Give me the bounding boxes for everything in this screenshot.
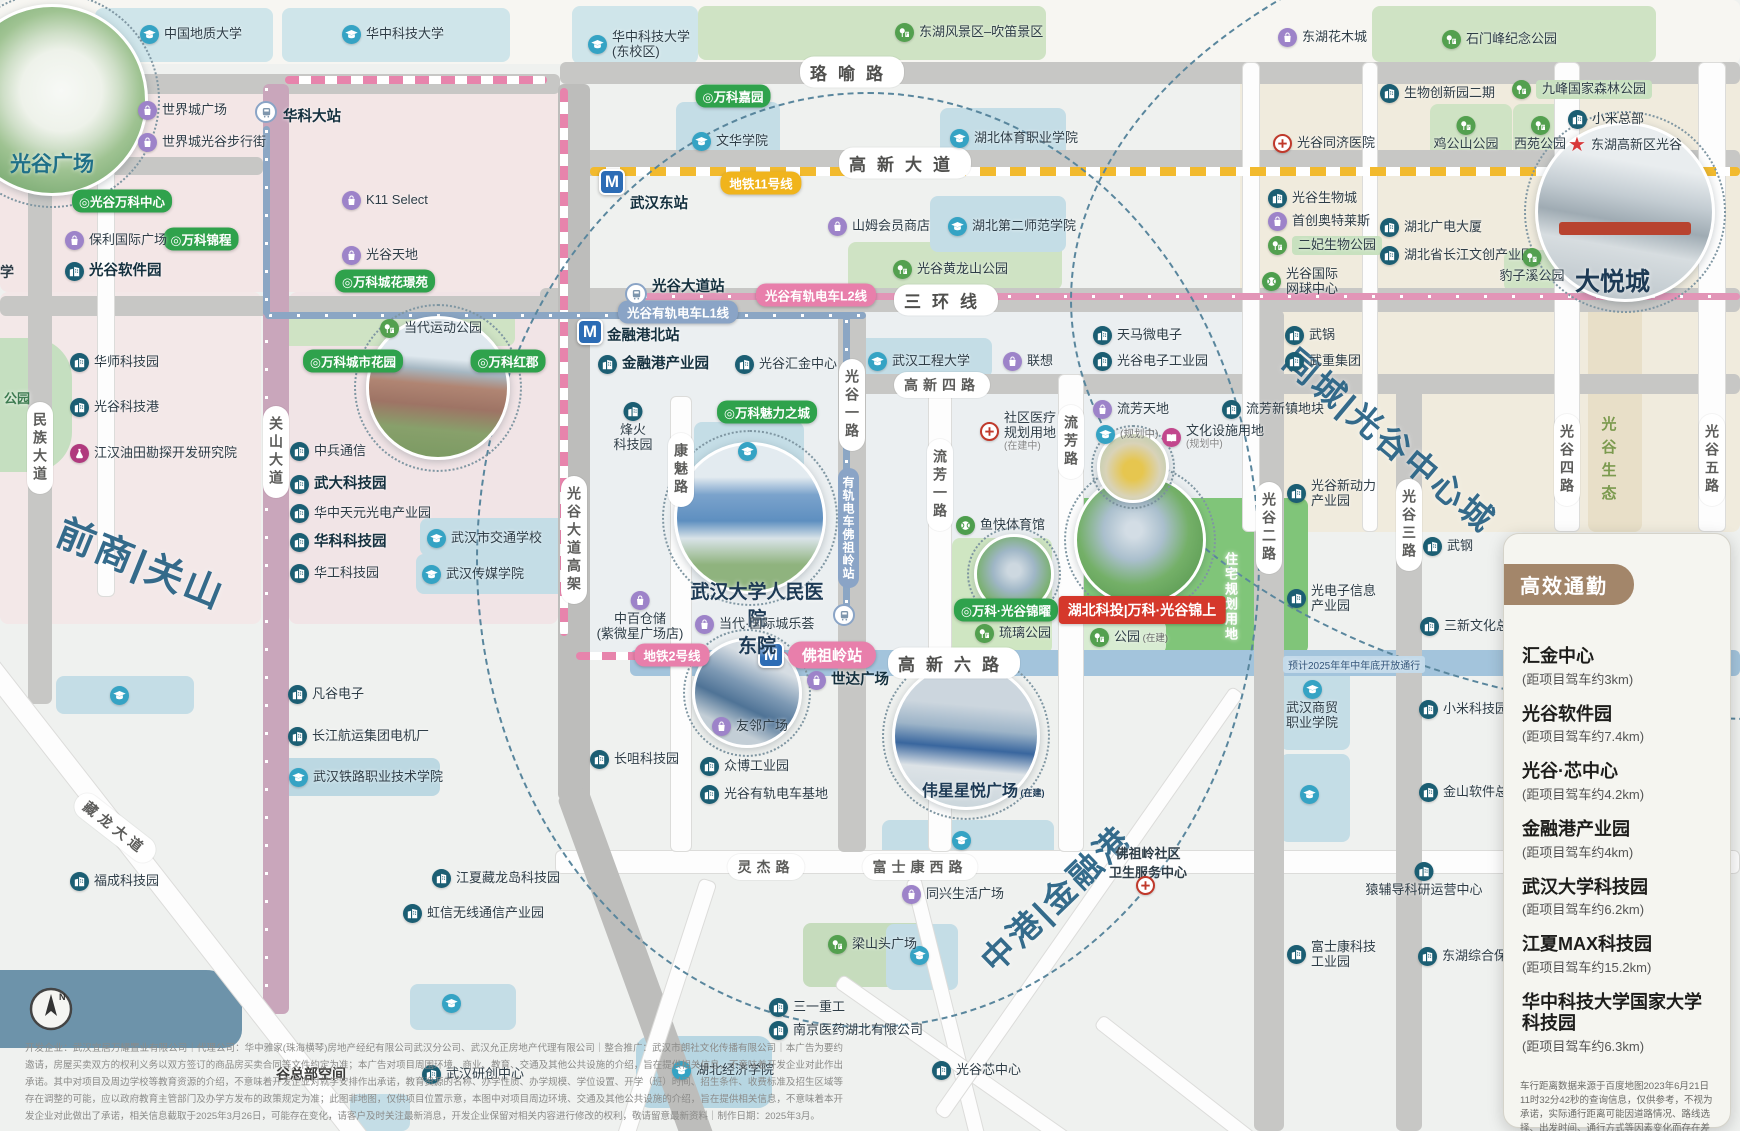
school-icon xyxy=(588,35,607,54)
enterprise-icon xyxy=(1419,783,1438,802)
shopping-icon xyxy=(342,191,361,210)
road-label: 富士康西路 xyxy=(863,854,978,880)
poi-label: 世界城光谷步行街 xyxy=(162,135,266,150)
enterprise-icon xyxy=(1093,352,1112,371)
commute-item: 江夏MAX科技园(距项目驾车约15.2km) xyxy=(1522,934,1718,976)
park-icon xyxy=(1090,628,1109,647)
poi-item: 三一重工 xyxy=(769,998,845,1017)
poi-label: 小米总部 xyxy=(1592,112,1644,127)
commute-item-name: 汇金中心 xyxy=(1522,646,1718,667)
enterprise-icon xyxy=(1287,945,1306,964)
poi-label: 光谷天地 xyxy=(366,248,418,263)
shopping-icon xyxy=(1268,212,1287,231)
commute-item-name: 光谷·芯中心 xyxy=(1522,761,1718,782)
poi-label: 金融港产业园 xyxy=(622,356,709,373)
poi-item: 当代运动公园 xyxy=(380,319,482,338)
poi-item: 光谷黄龙山公园 xyxy=(893,260,1008,279)
commute-item-distance: (距项目驾车约6.3km) xyxy=(1522,1036,1718,1055)
enterprise-icon xyxy=(288,727,307,746)
road-label-eco: 光谷生态 xyxy=(1598,416,1619,508)
poi-label: 武锅 xyxy=(1309,328,1335,343)
project-badge-main: 湖北科投|万科·光谷锦上 xyxy=(1059,596,1226,624)
poi-label: 三一重工 xyxy=(793,1000,845,1015)
poi-item: 长江航运集团电机厂 xyxy=(288,727,429,746)
poi-item: 华中科技大学 xyxy=(342,25,444,44)
tram-station: 光谷大道站 xyxy=(625,283,647,306)
rail-line-badge: 地铁11号线 xyxy=(720,172,801,195)
poi-label: 光谷同济医院 xyxy=(1297,136,1375,151)
hospital-icon xyxy=(980,422,999,441)
park-icon xyxy=(1522,248,1541,267)
school-icon xyxy=(427,529,446,548)
poi-item: 武汉传媒学院 xyxy=(422,565,524,584)
poi-item: 山姆会员商店 xyxy=(828,217,930,236)
poi-label: 中兵通信 xyxy=(314,444,366,459)
tram-station-vertical-label: 有轨电车佛祖岭站 xyxy=(838,468,859,588)
poi-item: 流芳新镇地块 xyxy=(1222,400,1324,419)
road-label: 藏龙大道 xyxy=(69,788,161,868)
poi-item: 武汉商贸 职业学院 xyxy=(1286,680,1338,731)
sports-icon xyxy=(1262,272,1281,291)
poi-label: 天马微电子 xyxy=(1117,328,1182,343)
enterprise-icon xyxy=(70,872,89,891)
road-label: 高新四路 xyxy=(894,372,990,398)
poi-label: 武汉传媒学院 xyxy=(446,567,524,582)
poi-label: 豹子溪公园 xyxy=(1499,269,1564,284)
poi-label: 首创奥特莱斯 xyxy=(1292,214,1370,229)
poi-label: 联想 xyxy=(1027,354,1053,369)
enterprise-icon xyxy=(1419,700,1438,719)
poi-label: 友邻广场 xyxy=(736,719,788,734)
enterprise-icon xyxy=(700,757,719,776)
poi-label: 众博工业园 xyxy=(724,759,789,774)
poi-label: 小米科技园 xyxy=(1443,702,1508,717)
school-icon xyxy=(948,217,967,236)
commute-item: 光谷软件园(距项目驾车约7.4km) xyxy=(1522,704,1718,746)
enterprise-icon xyxy=(1222,400,1241,419)
enterprise-icon xyxy=(623,402,642,421)
tram-station: 华科大站 xyxy=(255,101,277,124)
tram-station xyxy=(833,604,855,627)
road-label: 高新大道 xyxy=(839,148,971,179)
hospital-icon xyxy=(1136,876,1155,895)
commute-item: 汇金中心(距项目驾车约3km) xyxy=(1522,646,1718,688)
legal-disclaimer: 开发企业：武汉宜居万耀置业有限公司｜代理公司：华中雅家(珠海横琴)房地产经纪有限… xyxy=(25,1040,843,1125)
poi-item: 首创奥特莱斯 xyxy=(1268,212,1370,231)
poi-label: 石门峰纪念公园 xyxy=(1466,32,1557,47)
poi-label: 中国地质大学 xyxy=(164,27,242,42)
enterprise-icon xyxy=(70,353,89,372)
metro-station-icon: M xyxy=(599,169,625,195)
commute-item-name: 武汉大学科技园 xyxy=(1522,877,1718,898)
poi-item: 虹信无线通信产业园 xyxy=(403,904,544,923)
poi-item xyxy=(1136,876,1155,895)
poi-label: 鸡公山公园 xyxy=(1433,137,1498,152)
poi-label: 江夏藏龙岛科技园 xyxy=(456,871,560,886)
enterprise-icon xyxy=(700,785,719,804)
poi-item: 二妃生物公园 xyxy=(1268,236,1382,255)
park-icon xyxy=(895,23,914,42)
map-text-label: 学 xyxy=(0,262,14,282)
map-text-label: 大悦城 xyxy=(1575,262,1650,298)
school-icon xyxy=(289,768,308,787)
road-label: 光谷一路 xyxy=(839,359,865,451)
poi-item: 保利国际广场 xyxy=(65,231,167,250)
enterprise-icon xyxy=(1093,326,1112,345)
road-label: 灵杰路 xyxy=(728,854,805,880)
enterprise-icon xyxy=(735,355,754,374)
enterprise-icon xyxy=(1414,862,1433,881)
rail-line xyxy=(285,76,547,84)
station-label: 武汉东站 xyxy=(630,192,688,213)
school-icon xyxy=(422,565,441,584)
poi-label: 武重集团 xyxy=(1309,354,1361,369)
park-icon xyxy=(1512,80,1531,99)
commute-item: 光谷·芯中心(距项目驾车约4.2km) xyxy=(1522,761,1718,803)
star-icon: ★ xyxy=(1568,135,1586,155)
poi-item: 光谷芯中心 xyxy=(932,1061,1021,1080)
metro-station: M金融港北站 xyxy=(577,319,603,345)
commute-item-name: 江夏MAX科技园 xyxy=(1522,934,1718,955)
poi-label: 流芳天地 xyxy=(1117,402,1169,417)
park-icon xyxy=(828,935,847,954)
poi-item: 光谷电子工业园 xyxy=(1093,352,1208,371)
poi-label: (规划中) xyxy=(1120,428,1159,440)
station-label: 华科大站 xyxy=(283,105,341,126)
poi-item xyxy=(110,686,129,705)
poi-item: K11 Select xyxy=(342,191,428,210)
enterprise-icon xyxy=(1423,537,1442,556)
commute-note: 车行距离数据来源于百度地图2023年6月21日11时32分42秒的查询信息，仅供… xyxy=(1520,1080,1716,1131)
sports-icon xyxy=(956,516,975,535)
poi-item: 华师科技园 xyxy=(70,353,159,372)
poi-item: 社区医疗 规划用地(在建中) xyxy=(980,411,1056,452)
poi-label: 社区医疗 规划用地(在建中) xyxy=(1004,411,1056,452)
poi-item: 猿辅导科研运营中心 xyxy=(1365,862,1482,898)
road-label: 康魅路 xyxy=(668,433,694,507)
poi-item: 世达广场 xyxy=(807,671,889,690)
poi-item: 江汉油田勘探开发研究院 xyxy=(70,444,237,463)
enterprise-icon xyxy=(290,442,309,461)
enterprise-icon xyxy=(290,504,309,523)
poi-item: 光谷国际 网球中心 xyxy=(1262,267,1338,297)
poi-item: 中百仓储 (紫微星广场店) xyxy=(597,591,684,642)
poi-label: 九峰国家森林公园 xyxy=(1536,80,1652,99)
poi-item: 光谷天地 xyxy=(342,246,418,265)
poi-item: 小米总部 xyxy=(1568,110,1644,129)
svg-text:N: N xyxy=(59,992,66,1002)
commute-item-distance: (距项目驾车约4km) xyxy=(1522,842,1718,861)
poi-item: 武汉市交通学校 xyxy=(427,529,542,548)
poi-item: 金融港产业园 xyxy=(598,355,709,374)
enterprise-icon xyxy=(432,869,451,888)
compass-icon: N xyxy=(28,986,74,1032)
project-badge-vanke: ◎万科红郡 xyxy=(471,350,546,373)
poi-item: 武汉铁路职业技术学院 xyxy=(289,768,443,787)
poi-label: 光谷软件园 xyxy=(89,263,162,280)
poi-item: 天马微电子 xyxy=(1093,326,1182,345)
poi-label: 光谷电子工业园 xyxy=(1117,354,1208,369)
poi-label: 文华学院 xyxy=(716,134,768,149)
poi-label: 中百仓储 (紫微星广场店) xyxy=(597,612,684,642)
shopping-icon xyxy=(1278,28,1297,47)
enterprise-icon xyxy=(1568,110,1587,129)
poi-item: 光电子信息 产业园 xyxy=(1287,584,1376,614)
map-text-label: 伟星星悦广场 (在建) xyxy=(922,777,1045,801)
rail-line xyxy=(263,126,270,316)
school-icon xyxy=(950,129,969,148)
poi-item: 文化设施用地(规划中) xyxy=(1162,424,1264,450)
school-icon xyxy=(952,831,971,850)
zone-block xyxy=(410,984,516,1030)
shopping-icon xyxy=(1093,400,1112,419)
shopping-icon xyxy=(712,717,731,736)
park-icon xyxy=(893,260,912,279)
enterprise-icon xyxy=(290,533,309,552)
poi-item: 华中天元光电产业园 xyxy=(290,504,431,523)
poi-item: 湖北体育职业学院 xyxy=(950,129,1078,148)
poi-item: 光谷软件园 xyxy=(65,262,162,281)
poi-item: 世界城广场 xyxy=(138,101,227,120)
poi-label: 猿辅导科研运营中心 xyxy=(1365,883,1482,898)
enterprise-icon xyxy=(65,262,84,281)
shopping-icon xyxy=(342,246,361,265)
school-icon xyxy=(342,25,361,44)
road-label: 光谷五路 xyxy=(1699,414,1725,506)
poi-label: 武汉铁路职业技术学院 xyxy=(313,770,443,785)
school-icon xyxy=(738,442,757,461)
enterprise-icon xyxy=(1287,589,1306,608)
poi-label: 光谷芯中心 xyxy=(956,1063,1021,1078)
poi-item: 湖北广电大厦 xyxy=(1380,218,1482,237)
enterprise-icon xyxy=(1380,246,1399,265)
poi-item: 公园 (在建) xyxy=(1090,628,1168,647)
poi-item: 武钢 xyxy=(1423,537,1473,556)
poi-item xyxy=(952,831,971,850)
enterprise-icon xyxy=(1418,947,1437,966)
park-icon xyxy=(975,624,994,643)
poi-label: 二妃生物公园 xyxy=(1292,236,1382,255)
poi-item: 光谷生物城 xyxy=(1268,189,1357,208)
road-label: 流芳一路 xyxy=(927,439,953,531)
poi-label: 保利国际广场 xyxy=(89,233,167,248)
poi-label: 世界城广场 xyxy=(162,103,227,118)
poi-label: 生物创新园二期 xyxy=(1404,86,1495,101)
poi-label: 光电子信息 产业园 xyxy=(1311,584,1376,614)
hospital-icon xyxy=(1273,134,1292,153)
enterprise-icon xyxy=(1285,326,1304,345)
poi-label: 华工科技园 xyxy=(314,566,379,581)
poi-item: 武锅 xyxy=(1285,326,1335,345)
poi-label: 琉璃公园 xyxy=(999,626,1051,641)
poi-label: 东湖风景区–吹笛景区 xyxy=(919,25,1043,40)
poi-label: 光谷科技港 xyxy=(94,400,159,415)
tram-station-icon xyxy=(833,604,855,626)
poi-item: 华科科技园 xyxy=(290,533,387,552)
road-label: 三环线 xyxy=(894,285,998,316)
poi-label: 华中科技大学 (东校区) xyxy=(612,30,690,60)
road-label: 光谷大道高架 xyxy=(561,476,587,604)
poi-label: 公园 (在建) xyxy=(1114,630,1168,645)
enterprise-icon xyxy=(70,398,89,417)
project-badge-vanke: ◎万科嘉园 xyxy=(696,85,771,108)
poi-item: 武汉工程大学 xyxy=(868,352,970,371)
metro-station-icon: M xyxy=(577,319,603,345)
poi-item: 文华学院 xyxy=(692,132,768,151)
map-text-label: 光谷广场 xyxy=(10,148,94,178)
poi-item: 东湖风景区–吹笛景区 xyxy=(895,23,1043,42)
poi-label: 东湖高新区光谷 xyxy=(1591,138,1682,153)
commute-item-distance: (距项目驾车约7.4km) xyxy=(1522,726,1718,745)
commute-item-distance: (距项目驾车约4.2km) xyxy=(1522,784,1718,803)
shopping-icon xyxy=(807,671,826,690)
commute-item-distance: (距项目驾车约6.2km) xyxy=(1522,899,1718,918)
poi-item: 世界城光谷步行街 xyxy=(138,133,266,152)
poi-label: 当代运动公园 xyxy=(404,321,482,336)
poi-label: 光谷生物城 xyxy=(1292,191,1357,206)
poi-label: 湖北第二师范学院 xyxy=(972,219,1076,234)
poi-label: 西苑公园 xyxy=(1514,137,1566,152)
rail-dots xyxy=(265,130,268,312)
poi-item: 小米科技园 xyxy=(1419,700,1508,719)
poi-item: 凡谷电子 xyxy=(288,685,364,704)
poi-item: 光谷新动力 产业园 xyxy=(1287,479,1376,509)
commute-item-name: 金融港产业园 xyxy=(1522,819,1718,840)
photo-renmin-hospital xyxy=(674,442,826,594)
station-label: 光谷大道站 xyxy=(652,275,725,296)
shopping-icon xyxy=(138,133,157,152)
poi-label: 山姆会员商店 xyxy=(852,219,930,234)
poi-label: 华师科技园 xyxy=(94,355,159,370)
poi-label: K11 Select xyxy=(366,193,428,208)
project-badge-vanke: ◎万科城市花园 xyxy=(303,350,403,373)
poi-item: 西苑公园 xyxy=(1514,116,1566,152)
enterprise-icon xyxy=(1285,352,1304,371)
shopping-icon xyxy=(695,615,714,634)
school-icon xyxy=(868,352,887,371)
commute-items-list: 汇金中心(距项目驾车约3km)光谷软件园(距项目驾车约7.4km)光谷·芯中心(… xyxy=(1522,646,1718,1071)
poi-item: 琉璃公园 xyxy=(975,624,1051,643)
enterprise-icon xyxy=(1380,218,1399,237)
park-icon xyxy=(1268,236,1287,255)
poi-item: 光谷科技港 xyxy=(70,398,159,417)
poi-item: 光谷同济医院 xyxy=(1273,134,1375,153)
poi-item: 联想 xyxy=(1003,352,1053,371)
poi-item: 梁山头广场 xyxy=(828,935,917,954)
enterprise-icon xyxy=(290,475,309,494)
poi-item xyxy=(442,994,461,1013)
enterprise-icon xyxy=(769,1021,788,1040)
poi-label: 文化设施用地(规划中) xyxy=(1186,424,1264,450)
enterprise-icon xyxy=(1268,189,1287,208)
poi-label: 当代·国际城乐荟 xyxy=(719,617,814,632)
station-label: 金融港北站 xyxy=(607,324,680,345)
poi-item: 东湖花木城 xyxy=(1278,28,1367,47)
map-text-label: 预计2025年年中年底开放通行 xyxy=(1283,656,1425,673)
project-badge-vanke: ◎万科锦程 xyxy=(164,228,239,251)
poi-label: 福成科技园 xyxy=(94,874,159,889)
poi-item: 烽火 科技园 xyxy=(613,402,652,453)
shopping-icon xyxy=(828,217,847,236)
poi-item: 武大科技园 xyxy=(290,475,387,494)
project-badge-vanke: ◎万科魅力之城 xyxy=(717,401,817,424)
enterprise-icon xyxy=(590,750,609,769)
poi-label: 东湖花木城 xyxy=(1302,30,1367,45)
school-icon xyxy=(442,994,461,1013)
road-label: 光谷四路 xyxy=(1554,414,1580,506)
rail-line-badge: 光谷有轨电车L2线 xyxy=(756,284,876,307)
map-canvas: 珞喻路高新大道三环线高新四路高新六路灵杰路富士康西路藏龙大道民族大道关山大道光谷… xyxy=(0,0,1740,1131)
poi-item: (规划中) xyxy=(1096,425,1159,444)
poi-label: 光谷新动力 产业园 xyxy=(1311,479,1376,509)
school-icon xyxy=(692,132,711,151)
poi-item xyxy=(738,442,757,461)
poi-label: 光谷黄龙山公园 xyxy=(917,262,1008,277)
poi-item: 石门峰纪念公园 xyxy=(1442,30,1557,49)
shopping-icon xyxy=(630,591,649,610)
enterprise-icon xyxy=(1380,84,1399,103)
school-icon xyxy=(140,25,159,44)
enterprise-icon xyxy=(598,355,617,374)
tram-station-icon xyxy=(625,283,647,305)
metro-station: M武汉东站 xyxy=(599,169,625,195)
road-label: 流芳路 xyxy=(1058,405,1084,479)
commute-panel: 高效通勤 汇金中心(距项目驾车约3km)光谷软件园(距项目驾车约7.4km)光谷… xyxy=(1503,533,1731,1128)
poi-item: 鱼快体育馆 xyxy=(956,516,1045,535)
flask-icon xyxy=(70,444,89,463)
enterprise-icon xyxy=(1287,484,1306,503)
shopping-icon xyxy=(902,885,921,904)
poi-label: 梁山头广场 xyxy=(852,937,917,952)
poi-label: 长江航运集团电机厂 xyxy=(312,729,429,744)
poi-label: 虹信无线通信产业园 xyxy=(427,906,544,921)
poi-item: 长咀科技园 xyxy=(590,750,679,769)
poi-item: 豹子溪公园 xyxy=(1499,248,1564,284)
commute-panel-title: 高效通勤 xyxy=(1504,564,1634,605)
enterprise-icon xyxy=(403,904,422,923)
commute-item-distance: (距项目驾车约15.2km) xyxy=(1522,957,1718,976)
poi-label: 武汉工程大学 xyxy=(892,354,970,369)
poi-label: 世达广场 xyxy=(831,672,889,689)
poi-item: 光谷汇金中心 xyxy=(735,355,837,374)
poi-item: 华工科技园 xyxy=(290,564,379,583)
poi-label: 华中科技大学 xyxy=(366,27,444,42)
poi-item: 流芳天地 xyxy=(1093,400,1169,419)
poi-label: 武大科技园 xyxy=(314,476,387,493)
school-icon xyxy=(1096,425,1115,444)
poi-label: 流芳新镇地块 xyxy=(1246,402,1324,417)
poi-item: 武重集团 xyxy=(1285,352,1361,371)
poi-label: 武钢 xyxy=(1447,539,1473,554)
poi-label: 武汉商贸 职业学院 xyxy=(1286,701,1338,731)
school-icon xyxy=(110,686,129,705)
project-badge-vanke: ◎万科城花璟苑 xyxy=(335,270,435,293)
poi-label: 长咀科技园 xyxy=(614,752,679,767)
enterprise-icon xyxy=(290,564,309,583)
commute-item-name: 光谷软件园 xyxy=(1522,704,1718,725)
book-icon xyxy=(1162,428,1181,447)
poi-item: 光谷有轨电车基地 xyxy=(700,785,828,804)
poi-label: 湖北体育职业学院 xyxy=(974,131,1078,146)
poi-label: 鱼快体育馆 xyxy=(980,518,1045,533)
enterprise-icon xyxy=(1420,617,1439,636)
road-label: 民族大道 xyxy=(27,402,53,494)
poi-label: 烽火 科技园 xyxy=(613,423,652,453)
road-label: 光谷二路 xyxy=(1256,482,1282,574)
commute-item-distance: (距项目驾车约3km) xyxy=(1522,669,1718,688)
poi-label: 富士康科技 工业园 xyxy=(1311,940,1376,970)
shopping-icon xyxy=(65,231,84,250)
